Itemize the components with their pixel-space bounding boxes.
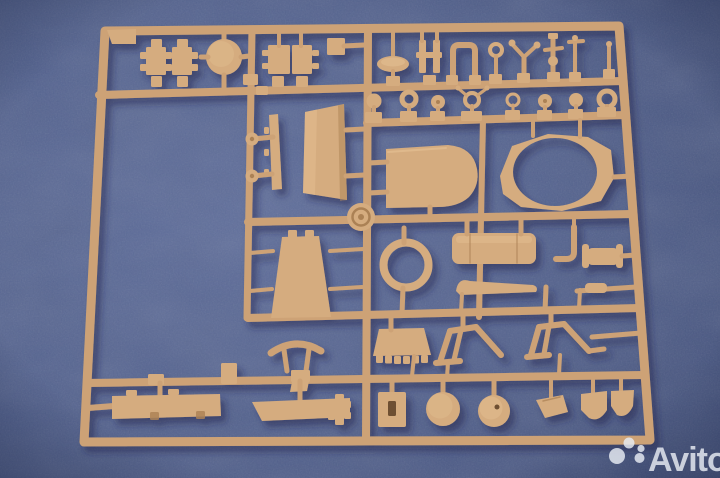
- sprue-part: [394, 356, 401, 364]
- sprue-part: [603, 69, 615, 79]
- sprue-part: [509, 40, 516, 47]
- sprue-part: [312, 50, 319, 56]
- corner-gusset: [107, 29, 136, 44]
- sprue-part: [288, 230, 297, 238]
- sprue-part: [328, 402, 335, 409]
- sprue-part: [346, 129, 364, 130]
- sprue-part: [151, 76, 162, 87]
- sprue-part: [537, 110, 552, 120]
- sprue-part: [376, 355, 383, 363]
- sprue-part: [165, 52, 172, 59]
- product-photo: Avito: [0, 0, 720, 478]
- sprue-part: [208, 41, 234, 67]
- avito-logo-circle: [624, 438, 635, 449]
- sprue-part: [548, 33, 558, 39]
- sprue-part: [272, 76, 284, 87]
- sprue-part: [400, 111, 417, 122]
- sprue-part: [221, 363, 237, 384]
- sprue-part: [344, 45, 364, 46]
- sprue-part: [150, 412, 159, 420]
- sprue-part: [572, 35, 578, 41]
- sprue-part: [177, 76, 188, 87]
- sprue-part: [527, 355, 549, 357]
- h-connector-1: [146, 47, 166, 75]
- cross-piece: [335, 394, 344, 425]
- skirt-panel: [373, 328, 431, 356]
- sprue-part: [344, 412, 351, 419]
- sprue-part: [421, 355, 428, 363]
- sprue-part: [284, 350, 287, 371]
- photo-canvas: Avito: [0, 0, 720, 478]
- sprue-part: [606, 41, 612, 47]
- sprue-part: [559, 355, 560, 374]
- sprue-part: [312, 63, 319, 69]
- sprue-part: [256, 86, 268, 95]
- sprue-part: [88, 406, 114, 408]
- sprue-part: [151, 39, 162, 48]
- sprue-part: [262, 50, 269, 56]
- box-part-1: [268, 45, 290, 74]
- sprue-part: [622, 255, 636, 256]
- sprue-part: [388, 401, 396, 416]
- avito-wordmark-text: Avito: [648, 441, 720, 478]
- sprue-part: [381, 58, 405, 67]
- hull-panel: [386, 145, 478, 208]
- sprue-part: [489, 74, 502, 84]
- sprue-part: [296, 76, 308, 87]
- sprue-part: [568, 109, 583, 119]
- sprue-part: [250, 289, 272, 291]
- sprue-part: [241, 56, 249, 57]
- sprue-part: [461, 294, 462, 312]
- sprue-part: [469, 75, 481, 85]
- sprue-part: [330, 287, 362, 289]
- sprue-part: [545, 287, 546, 311]
- sprue-part: [589, 349, 604, 351]
- sprue-part: [485, 86, 490, 91]
- sprue-part: [569, 41, 583, 42]
- sprue-part: [505, 110, 520, 120]
- avito-logo-circle: [637, 445, 644, 452]
- sprue-part: [369, 192, 387, 193]
- sprue-part: [416, 52, 442, 58]
- sprue-part: [403, 356, 410, 364]
- sprue-part: [456, 86, 461, 91]
- avito-logo-circle: [635, 453, 645, 463]
- sprue-part: [428, 394, 453, 419]
- sprue-part: [430, 111, 445, 121]
- sprue-part: [264, 127, 269, 134]
- sprue-part: [305, 230, 314, 238]
- sprue-part: [517, 73, 530, 83]
- sprue-part: [545, 48, 562, 50]
- sprue-part: [365, 112, 382, 123]
- sprue-part: [423, 75, 436, 85]
- sprue-part: [402, 288, 403, 313]
- sprue-part: [344, 401, 351, 408]
- sprue-part: [126, 390, 137, 396]
- sprue-part: [306, 349, 309, 371]
- sprue-part: [330, 249, 363, 251]
- sprue-part: [177, 39, 188, 48]
- sprue-part: [447, 362, 448, 378]
- sprue-part: [548, 56, 558, 66]
- sprue-part: [543, 99, 547, 103]
- sprue-part: [140, 52, 147, 59]
- sprue-part: [346, 175, 364, 176]
- sprue-part: [250, 137, 254, 141]
- sprue-part: [191, 52, 198, 59]
- sprue-part: [328, 413, 335, 420]
- sprue-part: [461, 111, 482, 121]
- h-connector-2: [172, 47, 192, 75]
- sprue-part: [597, 107, 616, 117]
- sprue-part: [369, 162, 387, 163]
- sprue-part: [386, 76, 400, 86]
- sprue-part: [547, 72, 560, 82]
- sprue-part: [436, 100, 440, 104]
- sprue-part: [264, 149, 269, 156]
- sprue-part: [456, 236, 532, 243]
- sprue-part: [168, 389, 179, 395]
- sprue-part: [614, 176, 632, 177]
- sprue-part: [582, 244, 589, 268]
- sprue-part: [446, 75, 458, 85]
- sprue-part: [585, 283, 607, 293]
- cylinder-part: [585, 248, 621, 265]
- sprue-part: [250, 251, 273, 253]
- sprue-part: [495, 405, 500, 410]
- sprue-part: [412, 356, 414, 376]
- sprue-part: [569, 72, 581, 82]
- avito-logo-circle: [609, 448, 625, 464]
- runner-vertical-center: [366, 29, 368, 440]
- sprue-part: [196, 411, 205, 419]
- sprue-part: [303, 110, 317, 196]
- sprue-part: [250, 174, 254, 178]
- sprue-part: [262, 63, 269, 69]
- sprue-part: [579, 290, 580, 308]
- sprue-part: [165, 64, 172, 71]
- sprue-part: [534, 42, 541, 49]
- sprue-part: [243, 74, 258, 85]
- sprue-part: [140, 64, 147, 71]
- box-part-2: [292, 45, 312, 74]
- sprue-part: [385, 356, 392, 364]
- a-frame-mount-2: [539, 324, 564, 327]
- sprue-part: [358, 214, 364, 220]
- sprue-part: [191, 64, 198, 71]
